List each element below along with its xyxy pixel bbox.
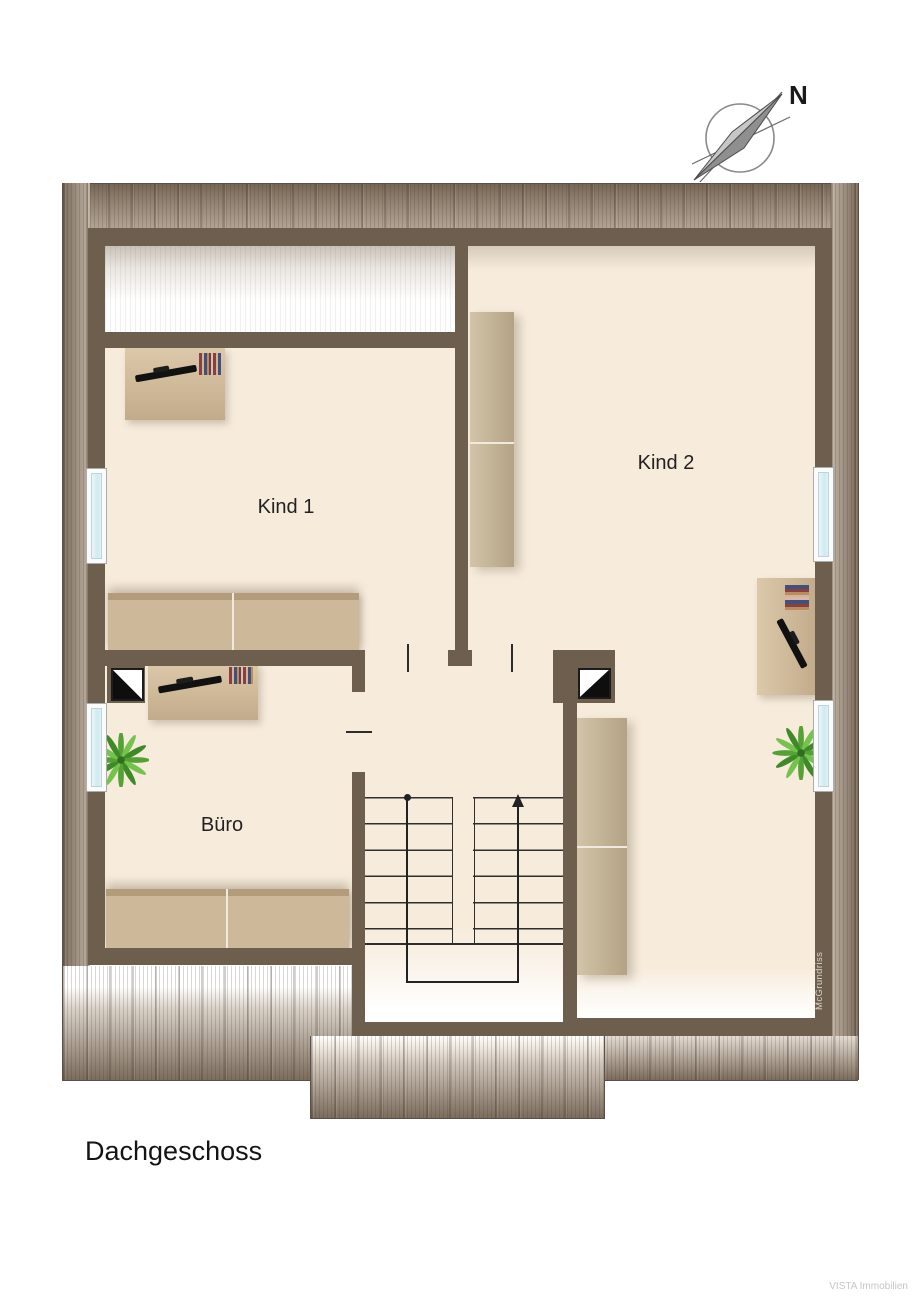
stair-walk-line bbox=[406, 799, 408, 983]
door-opening-tick bbox=[407, 644, 409, 672]
desk-icon bbox=[125, 348, 225, 420]
floor-title: Dachgeschoss bbox=[85, 1136, 262, 1167]
exterior-wall-right bbox=[815, 560, 832, 700]
books-icon bbox=[199, 353, 221, 375]
interior-wall-hall-left bbox=[352, 666, 365, 692]
sideboard-icon bbox=[108, 593, 359, 652]
room-label-buero: Büro bbox=[172, 814, 272, 837]
window-icon bbox=[813, 700, 834, 792]
wardrobe-icon bbox=[577, 718, 627, 975]
exterior-wall-left bbox=[88, 790, 105, 965]
roof-overhang-hatch-left bbox=[62, 183, 90, 1080]
exterior-wall-right bbox=[815, 228, 832, 467]
stair-walk-line bbox=[406, 981, 519, 983]
sideboard-icon bbox=[106, 889, 349, 948]
interior-wall-divider bbox=[455, 228, 468, 662]
interior-wall-hall-right bbox=[563, 703, 577, 1036]
door-opening-tick bbox=[511, 644, 513, 672]
stair-walk-line-arrow bbox=[512, 794, 524, 807]
exterior-wall-bottom-buero bbox=[88, 948, 365, 965]
north-label: N bbox=[789, 80, 808, 111]
door-opening-tick bbox=[346, 731, 372, 733]
roof-slope-shade bbox=[468, 246, 815, 270]
window-icon bbox=[813, 467, 834, 562]
exterior-wall-bottom-bay bbox=[352, 1022, 577, 1036]
interior-wall-pier bbox=[448, 650, 472, 666]
room-label-kind2: Kind 2 bbox=[616, 452, 716, 475]
window-icon bbox=[86, 703, 107, 792]
books-icon bbox=[229, 667, 253, 684]
knee-wall-void bbox=[105, 246, 455, 334]
keyboard-icon bbox=[135, 365, 197, 383]
staircase bbox=[365, 666, 563, 1022]
stair-stringer bbox=[452, 797, 475, 945]
stair-walk-line bbox=[517, 806, 519, 983]
stair-flight-down bbox=[365, 797, 452, 945]
keyboard-icon bbox=[776, 618, 808, 669]
desk-icon bbox=[148, 663, 258, 720]
interior-wall-hall-left bbox=[352, 772, 365, 1022]
roof-overhang-hatch-right bbox=[831, 183, 859, 1080]
knee-wall-kind1 bbox=[105, 332, 455, 348]
exterior-wall-bottom-kind2 bbox=[563, 1018, 832, 1036]
room-label-kind1: Kind 1 bbox=[236, 496, 336, 519]
roof-overhang-hatch-top bbox=[62, 183, 858, 230]
chimney-icon bbox=[578, 668, 611, 699]
stair-bottom-edge bbox=[365, 943, 563, 945]
exterior-wall-left bbox=[88, 562, 105, 703]
chimney-icon bbox=[111, 668, 144, 701]
roof-overhang-hatch-bottom-center bbox=[310, 1036, 605, 1119]
exterior-wall-left bbox=[88, 228, 105, 468]
desk-icon bbox=[757, 578, 816, 695]
floor-plan-canvas: N Kind 1 Kind 2 Büro Dachgeschoss McGrun… bbox=[0, 0, 920, 1303]
books-icon bbox=[785, 585, 809, 611]
window-icon bbox=[86, 468, 107, 564]
roof-overhang-hatch-bottom-right bbox=[603, 1036, 858, 1081]
brand-watermark: VISTA Immobilien bbox=[829, 1281, 908, 1292]
wardrobe-icon bbox=[470, 312, 514, 567]
keyboard-icon bbox=[158, 675, 222, 693]
plan-credit-vertical: McGrundriss bbox=[814, 948, 833, 1014]
